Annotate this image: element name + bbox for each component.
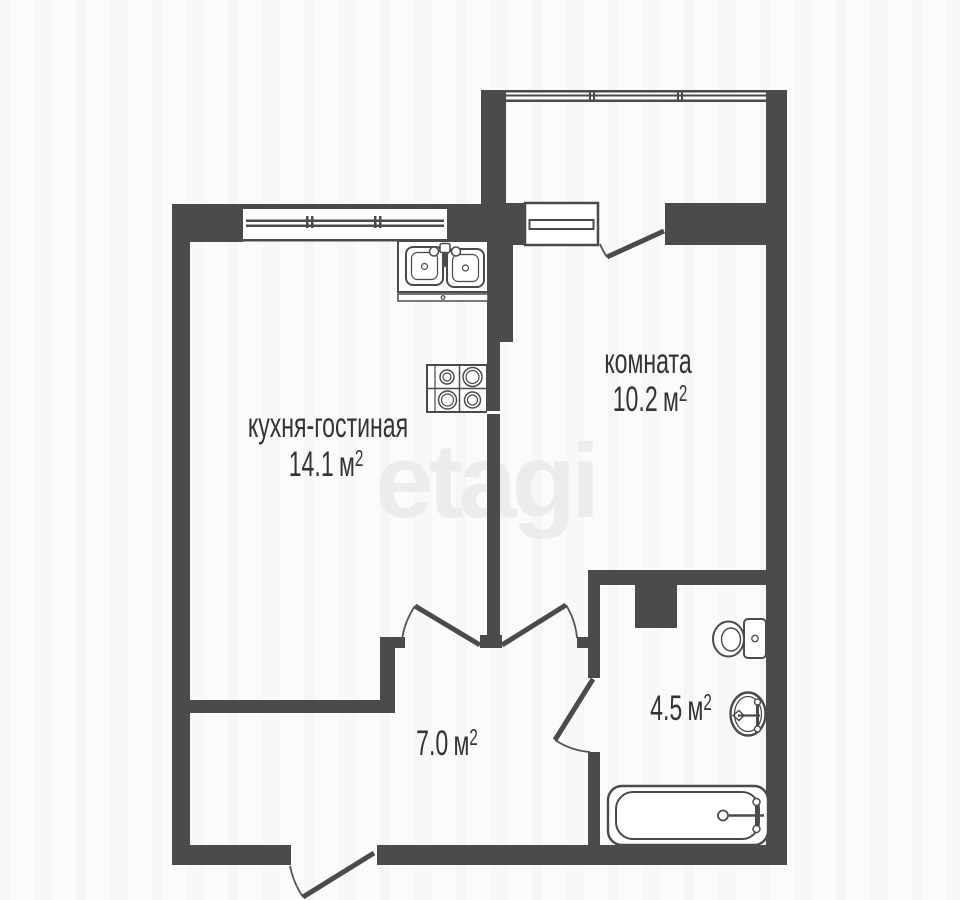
bottom-wall-left	[172, 845, 291, 865]
toilet-icon	[713, 619, 766, 658]
hallway-area-unit: м	[454, 724, 470, 763]
bathroom-area-value: 4.5	[650, 689, 682, 728]
kitchen-living-area-value: 14.1	[289, 445, 334, 484]
room-area-sup: 2	[679, 380, 687, 406]
room-door-right-jamb	[577, 637, 588, 648]
kitchen-wall-L-vertical	[380, 648, 395, 703]
balcony-glazing	[506, 90, 766, 102]
outer-wall-left	[172, 204, 190, 865]
divider-wall-thin	[487, 342, 500, 635]
room-label: комната	[549, 344, 747, 379]
room-area-value: 10.2	[613, 380, 658, 419]
divider-wall-upper	[481, 90, 506, 208]
ventilation-shaft	[635, 585, 677, 628]
balcony-wall-left-piece	[506, 203, 526, 245]
kitchen-top-wall-right	[447, 204, 506, 242]
bathroom-area: 4.5м2	[582, 691, 780, 726]
kitchen-living-label: кухня-гостиная	[229, 408, 427, 443]
room-area-unit: м	[663, 380, 679, 419]
kitchen-window	[243, 204, 447, 242]
balcony-door	[600, 231, 664, 257]
entrance-door	[290, 853, 374, 897]
floor-plan-drawing	[0, 0, 960, 900]
floor-plan-canvas: etagi	[0, 0, 960, 900]
counter-edge-notch	[487, 410, 500, 416]
bathroom-area-sup: 2	[703, 689, 711, 715]
hallway-area: 7.0м2	[348, 726, 546, 761]
divider-wall-mid	[487, 240, 513, 342]
bathtub-icon	[608, 786, 768, 845]
outer-wall-right	[766, 90, 787, 865]
kitchen-living-area-unit: м	[339, 445, 355, 484]
kitchen-hall-door	[402, 606, 480, 645]
bathroom-west-wall-upper	[588, 570, 600, 678]
hallway-area-value: 7.0	[416, 724, 448, 763]
kitchen-living-area-sup: 2	[355, 445, 363, 471]
double-kitchen-sink-icon	[398, 241, 488, 301]
bathroom-top-wall	[588, 570, 766, 585]
kitchen-top-wall-left	[172, 204, 243, 242]
hallway-area-sup: 2	[469, 724, 477, 750]
kitchen-living-area: 14.1м2	[227, 447, 425, 482]
balcony-window	[525, 203, 598, 245]
bathroom-area-unit: м	[688, 689, 704, 728]
room-area: 10.2м2	[551, 382, 749, 417]
balcony-wall-right-piece	[665, 203, 766, 245]
room-hall-door	[502, 605, 577, 645]
kitchen-south-wall	[190, 700, 395, 713]
divider-wall-end-block	[480, 635, 502, 648]
kitchen-door-left-jamb	[380, 637, 405, 648]
bottom-wall-right	[377, 845, 787, 865]
